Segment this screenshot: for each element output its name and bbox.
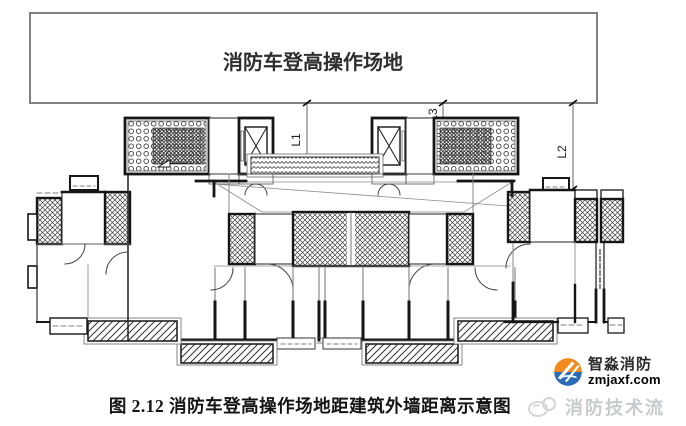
brand-block: 智淼消防 zmjaxf.com bbox=[552, 356, 686, 388]
stair-trapezoid bbox=[214, 182, 512, 212]
dim-l2-label: L2 bbox=[555, 145, 569, 159]
watermark-text: 消防技术流 bbox=[565, 394, 665, 420]
right-core bbox=[372, 118, 518, 174]
building-plan bbox=[28, 118, 624, 365]
operation-site: 消防车登高操作场地 bbox=[30, 13, 597, 103]
brand-logo-icon bbox=[552, 356, 584, 388]
center-corridor-band bbox=[247, 154, 383, 177]
figure-page: 消防车登高操作场地 L1 L3 L2 bbox=[0, 0, 686, 426]
figure-caption: 图 2.12 消防车登高操作场地距建筑外墙距离示意图 bbox=[30, 393, 590, 418]
left-wing bbox=[28, 174, 130, 340]
watermark-block: 消防技术流 bbox=[527, 394, 665, 420]
right-wing bbox=[505, 178, 624, 333]
dim-l1-label: L1 bbox=[289, 133, 303, 147]
middle-room-row bbox=[229, 212, 473, 290]
brand-title: 智淼消防 bbox=[588, 357, 661, 373]
stair-walls bbox=[196, 181, 514, 196]
watermark-icon bbox=[527, 395, 561, 419]
operation-site-label: 消防车登高操作场地 bbox=[223, 50, 403, 74]
brand-url: zmjaxf.com bbox=[588, 373, 661, 387]
